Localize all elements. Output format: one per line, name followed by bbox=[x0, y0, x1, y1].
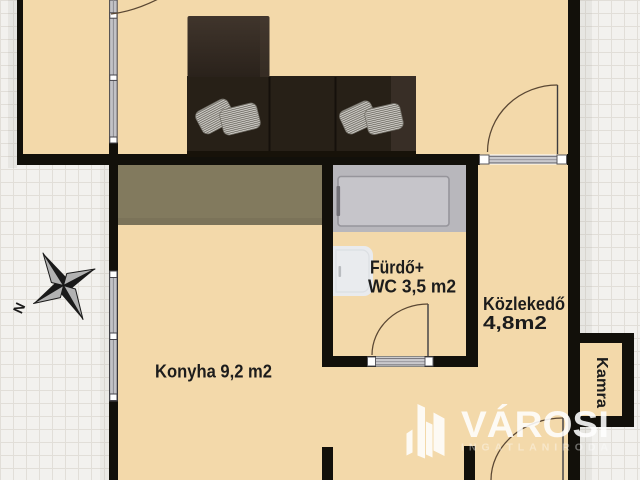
svg-text:Konyha 9,2 m2: Konyha 9,2 m2 bbox=[155, 361, 272, 382]
svg-text:VÁROSI: VÁROSI bbox=[461, 404, 609, 445]
svg-text:Közlekedő: Közlekedő bbox=[483, 293, 565, 314]
svg-text:4,8m2: 4,8m2 bbox=[483, 312, 547, 333]
svg-text:WC 3,5 m2: WC 3,5 m2 bbox=[368, 275, 456, 296]
svg-text:Kamra: Kamra bbox=[593, 357, 610, 408]
